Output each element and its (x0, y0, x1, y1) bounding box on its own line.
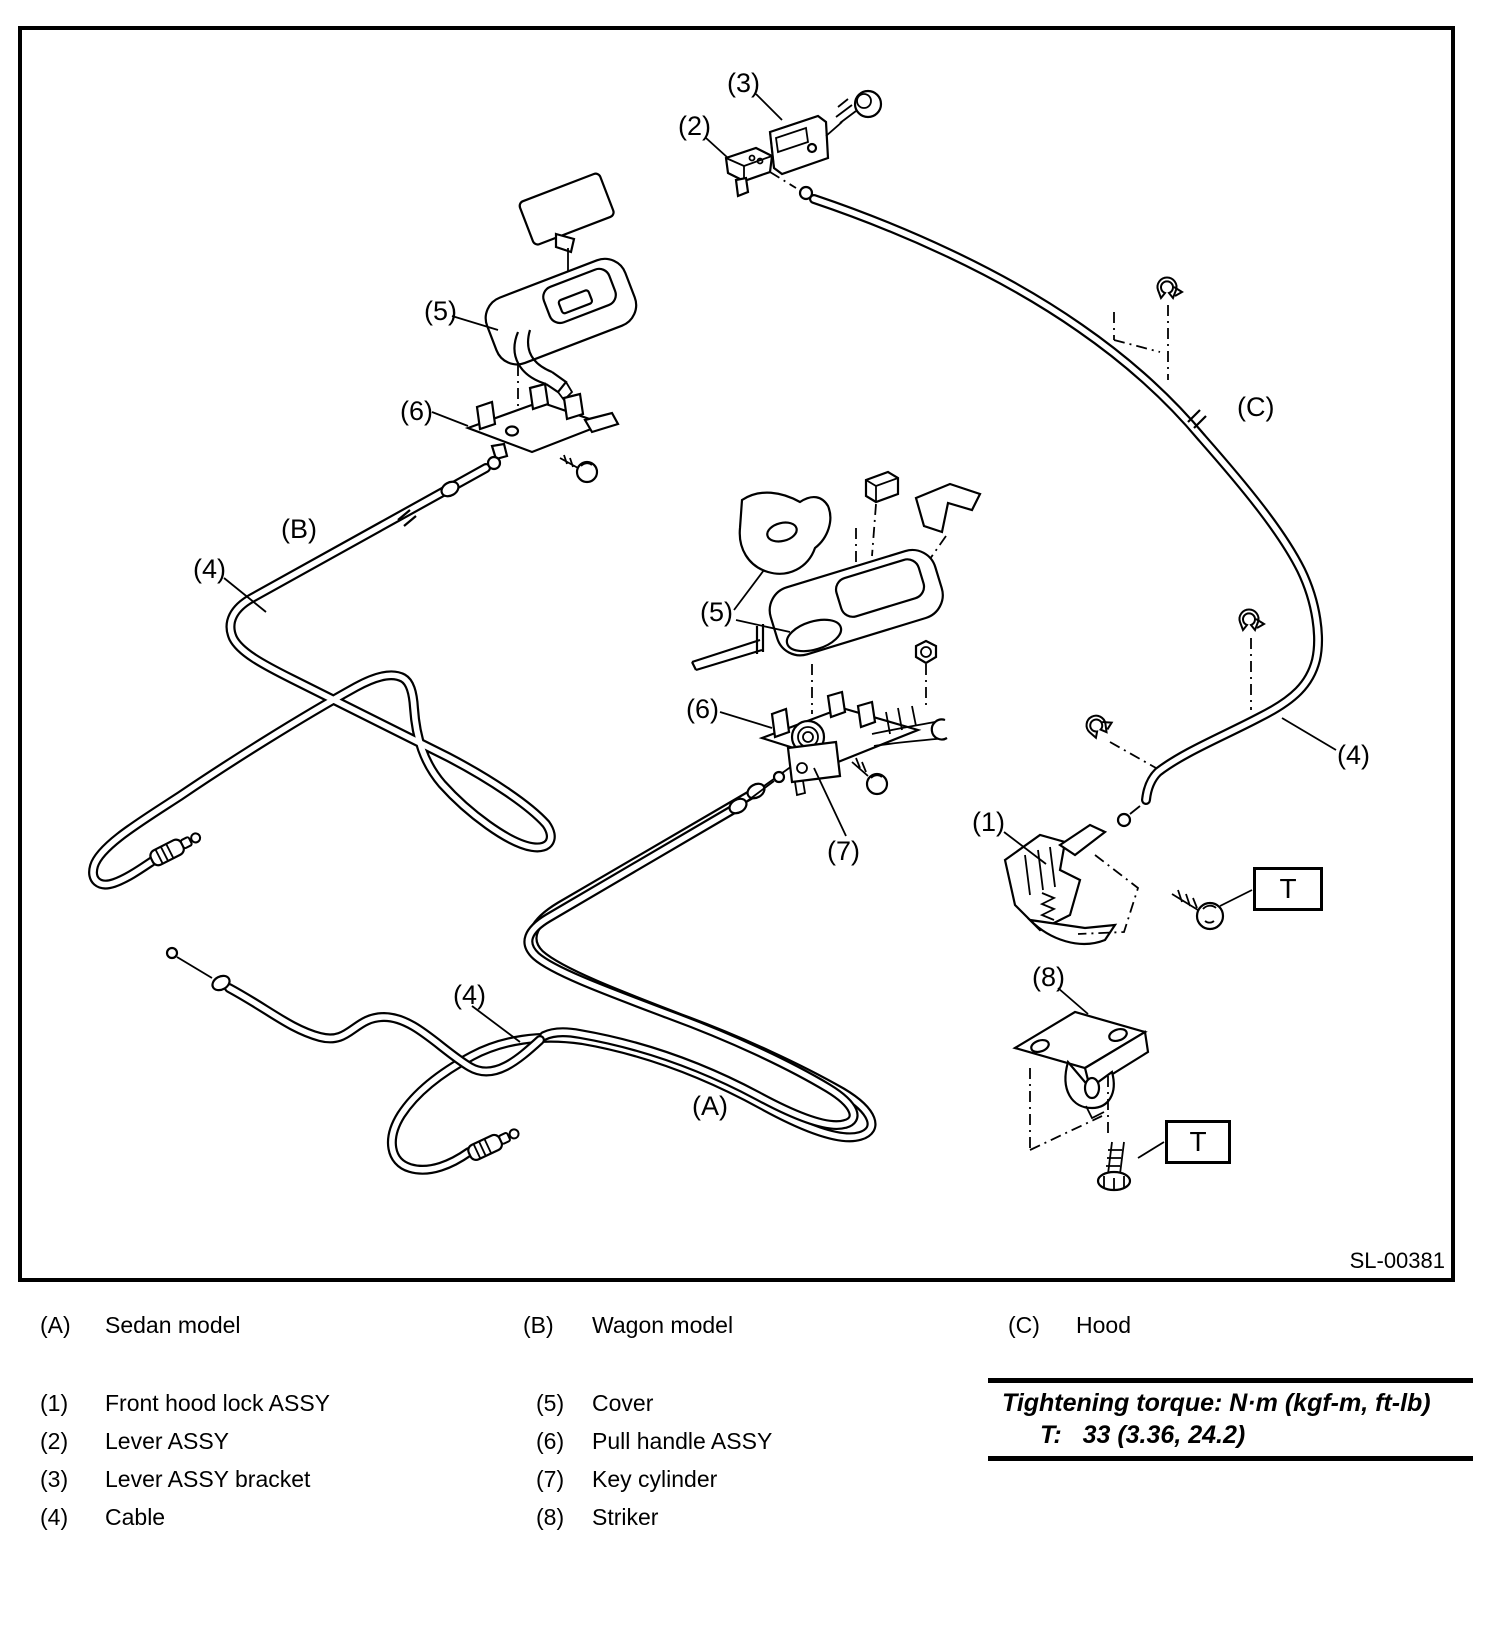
sedan-cable (167, 757, 872, 1170)
legend-label: Wagon model (592, 1312, 733, 1340)
legend-key: (6) (536, 1428, 564, 1456)
bolt-top (826, 91, 881, 136)
legend-label: Cable (105, 1504, 165, 1532)
legend-label: Lever ASSY (105, 1428, 229, 1456)
callout-5-sedan: (5) (700, 599, 733, 626)
legend-key: (A) (40, 1312, 71, 1340)
wagon-cover-part (479, 172, 642, 400)
callout-4-wagon: (4) (193, 556, 226, 583)
legend-label: Pull handle ASSY (592, 1428, 772, 1456)
callout-1: (1) (972, 809, 1005, 836)
legend-key: (8) (536, 1504, 564, 1532)
callout-7: (7) (827, 838, 860, 865)
striker-part (1015, 1012, 1164, 1190)
callout-5-wagon: (5) (424, 298, 457, 325)
callout-4-sedan: (4) (453, 982, 486, 1009)
legend-key: (3) (40, 1466, 68, 1494)
torque-marker-box-hood-lock: T (1253, 867, 1323, 911)
legend-label: Lever ASSY bracket (105, 1466, 310, 1494)
sedan-handle-bolt (852, 758, 887, 794)
legend-label: Hood (1076, 1312, 1131, 1340)
legend-key: (C) (1008, 1312, 1040, 1340)
callout-3: (3) (727, 70, 760, 97)
legend-key: (B) (523, 1312, 554, 1340)
callout-c: (C) (1237, 394, 1274, 421)
legend-label: Key cylinder (592, 1466, 717, 1494)
legend-label: Striker (592, 1504, 658, 1532)
sedan-handle-nut (916, 641, 936, 710)
legend-label: Sedan model (105, 1312, 241, 1340)
torque-marker-label: T (1279, 873, 1296, 905)
torque-marker-box-striker: T (1165, 1120, 1231, 1164)
torque-value: T: 33 (3.36, 24.2) (988, 1421, 1473, 1450)
callout-6-wagon: (6) (400, 398, 433, 425)
legend-key: (7) (536, 1466, 564, 1494)
wagon-cable (93, 468, 551, 884)
legend-label: Front hood lock ASSY (105, 1390, 330, 1418)
legend-key: (1) (40, 1390, 68, 1418)
torque-title: Tightening torque: N·m (kgf-m, ft-lb) (988, 1389, 1473, 1418)
callout-2: (2) (678, 113, 711, 140)
legend-label: Cover (592, 1390, 653, 1418)
legend-key: (2) (40, 1428, 68, 1456)
callout-6-sedan: (6) (686, 696, 719, 723)
callout-b: (B) (281, 516, 317, 543)
sedan-cover-part (740, 493, 831, 574)
tightening-torque-note: Tightening torque: N·m (kgf-m, ft-lb) T:… (988, 1378, 1473, 1461)
legend-key: (5) (536, 1390, 564, 1418)
callout-a: (A) (692, 1093, 728, 1120)
front-hood-lock-assy (1005, 825, 1252, 944)
figure-code: SL-00381 (1320, 1248, 1445, 1274)
torque-marker-label: T (1189, 1126, 1206, 1158)
service-manual-page: { "diagram": { "figure_code": "SL-00381"… (0, 0, 1504, 1638)
callout-8: (8) (1032, 964, 1065, 991)
lever-assy-bracket-part (770, 116, 828, 174)
callout-4-hood: (4) (1337, 742, 1370, 769)
legend-key: (4) (40, 1504, 68, 1532)
sedan-pull-handle-assy (762, 664, 947, 795)
